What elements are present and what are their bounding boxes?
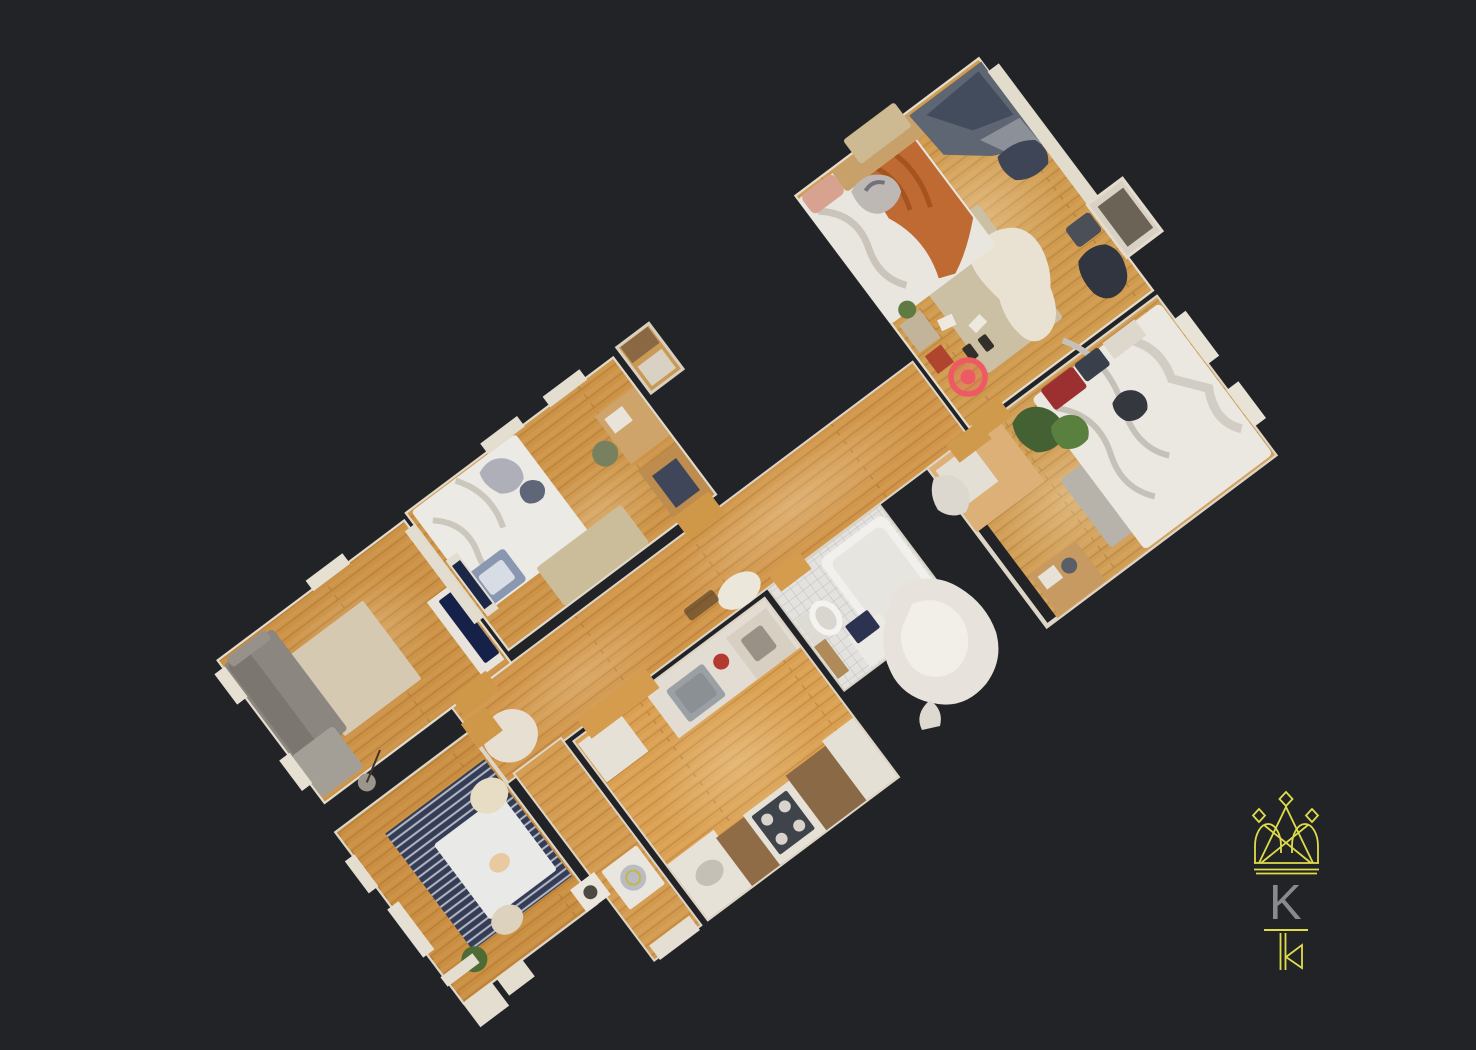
svg-text:K: K [1269,876,1302,930]
